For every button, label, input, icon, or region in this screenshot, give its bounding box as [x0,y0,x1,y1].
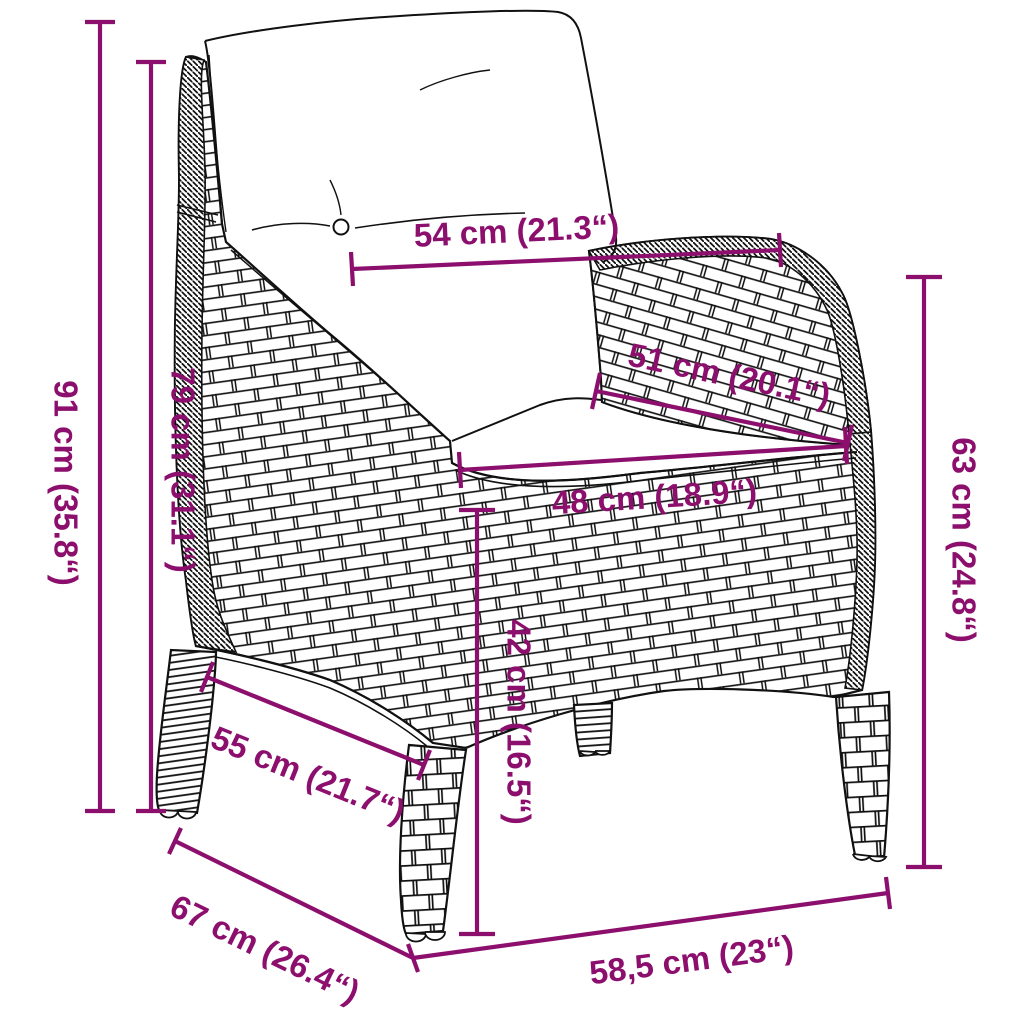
svg-text:79 cm (31.1“): 79 cm (31.1“) [165,367,202,572]
svg-text:42 cm (16.5“): 42 cm (16.5“) [501,619,538,824]
svg-text:91 cm (35.8“): 91 cm (35.8“) [48,380,85,585]
svg-text:63 cm (24.8“): 63 cm (24.8“) [946,437,983,642]
